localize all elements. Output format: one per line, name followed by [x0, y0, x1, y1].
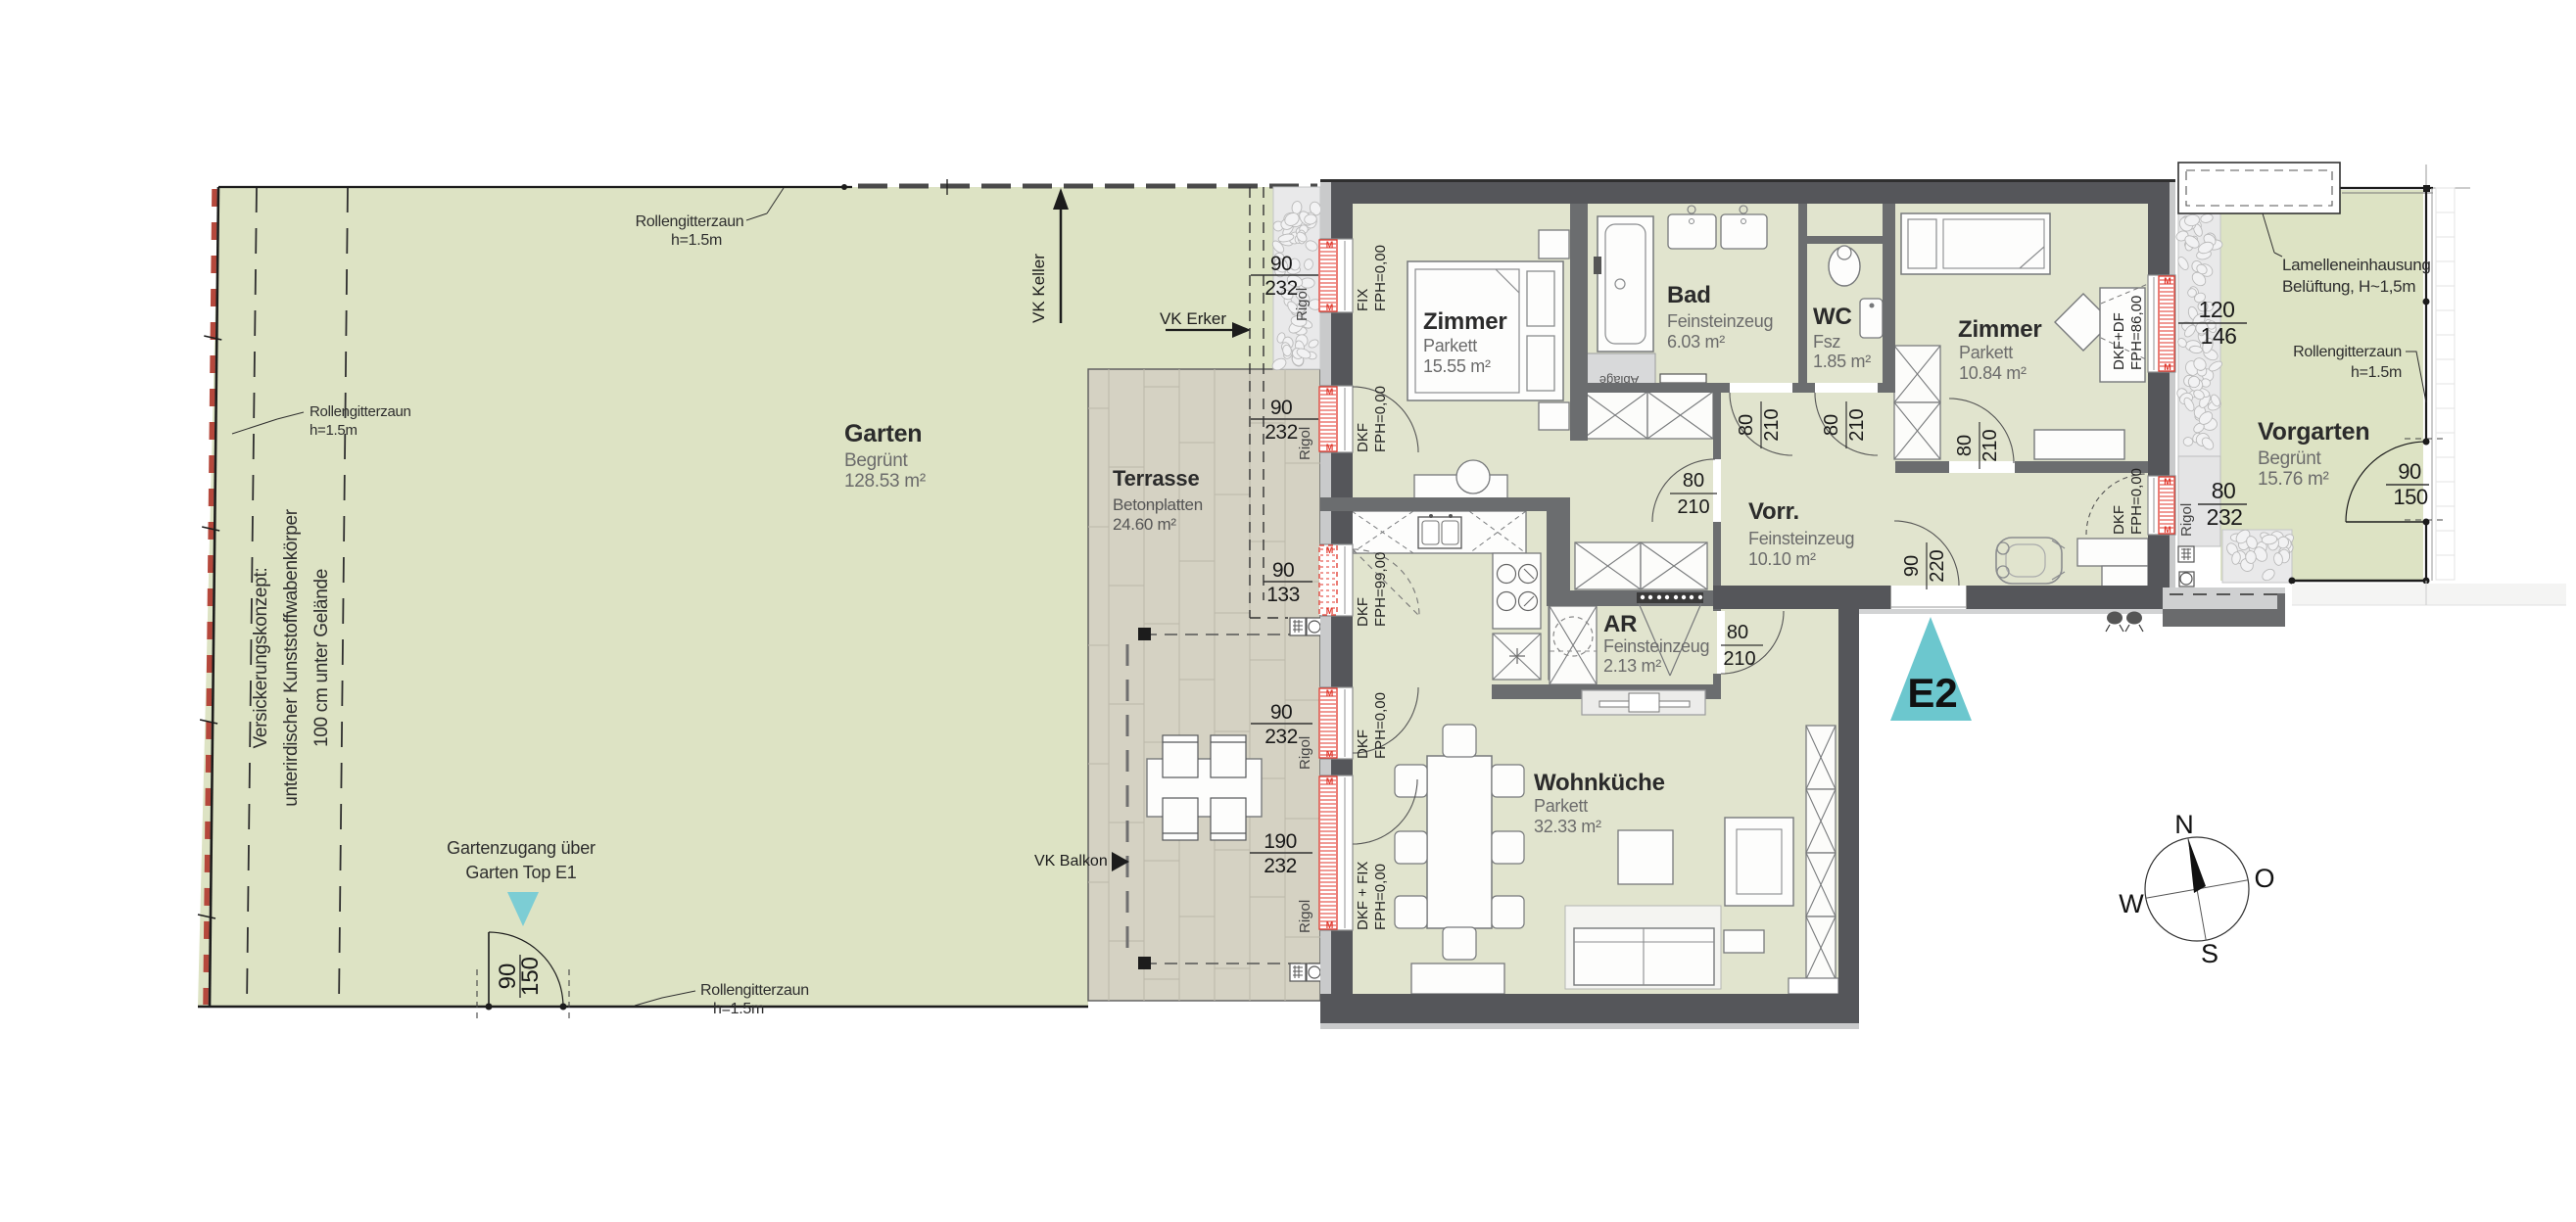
svg-text:S: S [2201, 939, 2218, 968]
svg-text:h=1.5m: h=1.5m [671, 232, 722, 249]
svg-text:128.53 m²: 128.53 m² [844, 471, 926, 492]
svg-text:h=1.5m: h=1.5m [310, 422, 358, 439]
svg-text:232: 232 [1264, 855, 1297, 877]
svg-text:Garten Top E1: Garten Top E1 [465, 863, 576, 882]
svg-text:90: 90 [2398, 459, 2421, 484]
svg-text:Parkett: Parkett [1423, 336, 1477, 355]
svg-text:DKF: DKF [1355, 729, 1371, 759]
svg-text:Versickerungskonzept:: Versickerungskonzept: [251, 568, 271, 749]
svg-text:15.76 m²: 15.76 m² [2258, 469, 2329, 490]
svg-text:M: M [1326, 749, 1334, 759]
svg-text:Feinsteinzeug: Feinsteinzeug [1748, 529, 1854, 548]
svg-text:N: N [2174, 810, 2194, 839]
svg-text:10.10 m²: 10.10 m² [1748, 549, 1816, 569]
svg-text:Begrünt: Begrünt [844, 450, 908, 471]
svg-text:VK Erker: VK Erker [1160, 309, 1226, 328]
svg-text:80: 80 [2212, 478, 2236, 503]
svg-text:FPH=0,00: FPH=0,00 [1372, 386, 1389, 452]
svg-text:M: M [1326, 240, 1334, 250]
svg-text:210: 210 [1677, 496, 1709, 518]
svg-text:h=1.5m: h=1.5m [2351, 364, 2402, 381]
svg-text:100 cm unter Gelände: 100 cm unter Gelände [311, 569, 332, 747]
svg-text:M: M [2164, 477, 2171, 487]
svg-text:80: 80 [1727, 622, 1748, 643]
svg-text:Parkett: Parkett [1534, 796, 1588, 816]
svg-text:90: 90 [1272, 559, 1294, 582]
svg-text:h=1.5m: h=1.5m [713, 1001, 764, 1017]
svg-text:M: M [2164, 362, 2171, 372]
svg-text:Garten: Garten [844, 420, 922, 447]
svg-text:O: O [2254, 864, 2274, 893]
svg-text:FPH=0,00: FPH=0,00 [1372, 864, 1389, 930]
svg-text:DKF: DKF [2111, 505, 2127, 535]
svg-text:210: 210 [1980, 429, 2001, 461]
svg-text:M: M [2164, 276, 2171, 286]
svg-text:24.60 m²: 24.60 m² [1113, 515, 1176, 534]
svg-text:FPH=99,00: FPH=99,00 [1372, 552, 1389, 627]
svg-text:190: 190 [1264, 830, 1297, 853]
svg-text:Vorr.: Vorr. [1748, 498, 1799, 525]
svg-text:146: 146 [2201, 323, 2237, 349]
svg-text:Fsz: Fsz [1813, 332, 1840, 352]
svg-text:210: 210 [1761, 408, 1783, 441]
svg-text:VK Keller: VK Keller [1029, 254, 1048, 323]
svg-text:DKF + FIX: DKF + FIX [1355, 862, 1371, 930]
svg-text:WC: WC [1813, 304, 1852, 330]
svg-text:Vorgarten: Vorgarten [2258, 418, 2369, 446]
svg-text:Rollengitterzaun: Rollengitterzaun [2293, 344, 2402, 360]
svg-text:W: W [2119, 889, 2144, 918]
svg-text:M: M [2164, 525, 2171, 535]
svg-text:90: 90 [1270, 253, 1292, 275]
svg-text:80: 80 [1954, 435, 1976, 456]
svg-text:10.84 m²: 10.84 m² [1959, 363, 2027, 383]
svg-text:Wohnküche: Wohnküche [1534, 770, 1665, 796]
svg-text:Rigol: Rigol [1297, 427, 1313, 460]
svg-text:Feinsteinzeug: Feinsteinzeug [1667, 311, 1773, 331]
svg-text:Belüftung, H~1,5m: Belüftung, H~1,5m [2282, 277, 2415, 296]
svg-text:150: 150 [2393, 485, 2427, 509]
svg-text:Feinsteinzeug: Feinsteinzeug [1603, 636, 1709, 656]
svg-text:FPH=0,00: FPH=0,00 [1372, 245, 1389, 311]
svg-text:VK Balkon: VK Balkon [1034, 853, 1108, 869]
svg-text:E2: E2 [1907, 670, 1957, 716]
svg-text:90: 90 [1270, 701, 1292, 724]
svg-text:120: 120 [2199, 297, 2235, 322]
svg-text:Rigol: Rigol [1297, 736, 1313, 770]
svg-text:Rollengitterzaun: Rollengitterzaun [310, 403, 411, 420]
svg-text:Betonplatten: Betonplatten [1113, 495, 1203, 514]
svg-text:Rigol: Rigol [2178, 503, 2195, 537]
svg-text:unterirdischer Kunststoffwaben: unterirdischer Kunststoffwabenkörper [281, 508, 302, 807]
svg-text:DKF+DF: DKF+DF [2111, 312, 2127, 370]
svg-text:FPH=0,00: FPH=0,00 [2128, 468, 2145, 535]
svg-text:M: M [1326, 545, 1334, 555]
svg-text:M: M [1326, 920, 1334, 930]
svg-text:Terrasse: Terrasse [1113, 466, 1200, 491]
svg-text:FPH=0,00: FPH=0,00 [1372, 692, 1389, 759]
svg-text:1.85 m²: 1.85 m² [1813, 352, 1871, 371]
svg-text:Rollengitterzaun: Rollengitterzaun [636, 213, 744, 230]
svg-text:90: 90 [1270, 397, 1292, 419]
svg-text:Zimmer: Zimmer [1958, 316, 2042, 343]
svg-text:M: M [1326, 387, 1334, 397]
svg-text:2.13 m²: 2.13 m² [1603, 656, 1661, 676]
svg-text:133: 133 [1266, 584, 1300, 606]
svg-text:Rigol: Rigol [1297, 900, 1313, 933]
svg-text:210: 210 [1723, 648, 1755, 670]
svg-text:80: 80 [1683, 470, 1704, 492]
svg-text:80: 80 [1821, 414, 1842, 436]
svg-text:Bad: Bad [1667, 282, 1711, 308]
svg-text:M: M [1326, 303, 1334, 312]
svg-text:Gartenzugang über: Gartenzugang über [447, 838, 596, 858]
svg-text:232: 232 [1264, 421, 1298, 444]
svg-text:Begrünt: Begrünt [2258, 448, 2321, 469]
svg-text:232: 232 [1264, 726, 1298, 748]
svg-text:FPH=86,00: FPH=86,00 [2128, 296, 2145, 370]
svg-text:232: 232 [1264, 277, 1298, 300]
svg-text:210: 210 [1846, 408, 1868, 441]
svg-text:Parkett: Parkett [1959, 343, 2013, 362]
svg-text:M: M [1326, 443, 1334, 452]
svg-text:DKF: DKF [1355, 597, 1371, 627]
svg-text:Rollengitterzaun: Rollengitterzaun [700, 982, 809, 999]
svg-text:6.03 m²: 6.03 m² [1667, 332, 1725, 352]
svg-text:Rigol: Rigol [1294, 288, 1311, 321]
svg-text:M: M [1326, 606, 1334, 616]
svg-text:150: 150 [517, 957, 544, 996]
svg-text:Lamelleneinhausung: Lamelleneinhausung [2282, 256, 2431, 274]
svg-text:220: 220 [1927, 549, 1948, 582]
svg-text:M: M [1326, 776, 1334, 786]
svg-text:AR: AR [1603, 611, 1637, 637]
svg-text:90: 90 [1901, 555, 1923, 577]
svg-text:DKF: DKF [1355, 423, 1371, 452]
svg-text:232: 232 [2207, 504, 2243, 530]
svg-text:FIX: FIX [1355, 289, 1371, 311]
svg-text:15.55 m²: 15.55 m² [1423, 356, 1491, 376]
svg-text:32.33 m²: 32.33 m² [1534, 817, 1601, 836]
svg-text:Zimmer: Zimmer [1423, 308, 1507, 335]
svg-text:80: 80 [1736, 414, 1757, 436]
svg-text:M: M [1326, 688, 1334, 698]
